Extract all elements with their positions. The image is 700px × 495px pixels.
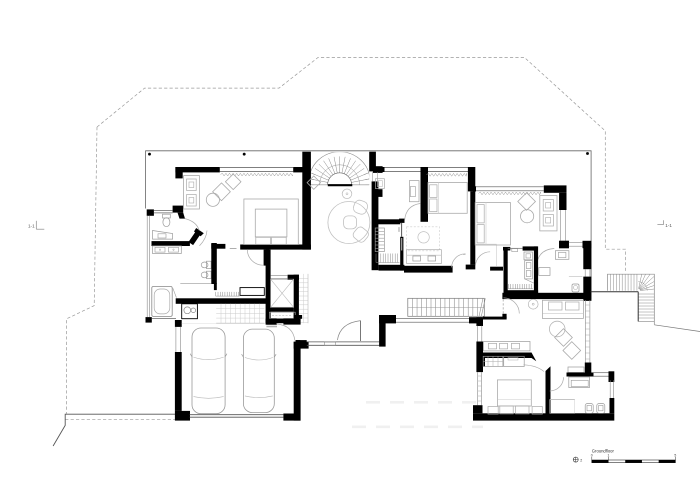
svg-text:1-1: 1-1 <box>28 223 35 228</box>
svg-text:2: 2 <box>580 458 582 462</box>
svg-text:5: 5 <box>674 454 676 458</box>
svg-text:1-1: 1-1 <box>665 223 672 228</box>
svg-text:Groundfloor: Groundfloor <box>592 449 615 454</box>
svg-text:0: 0 <box>591 454 593 458</box>
svg-text:1: 1 <box>608 454 610 458</box>
